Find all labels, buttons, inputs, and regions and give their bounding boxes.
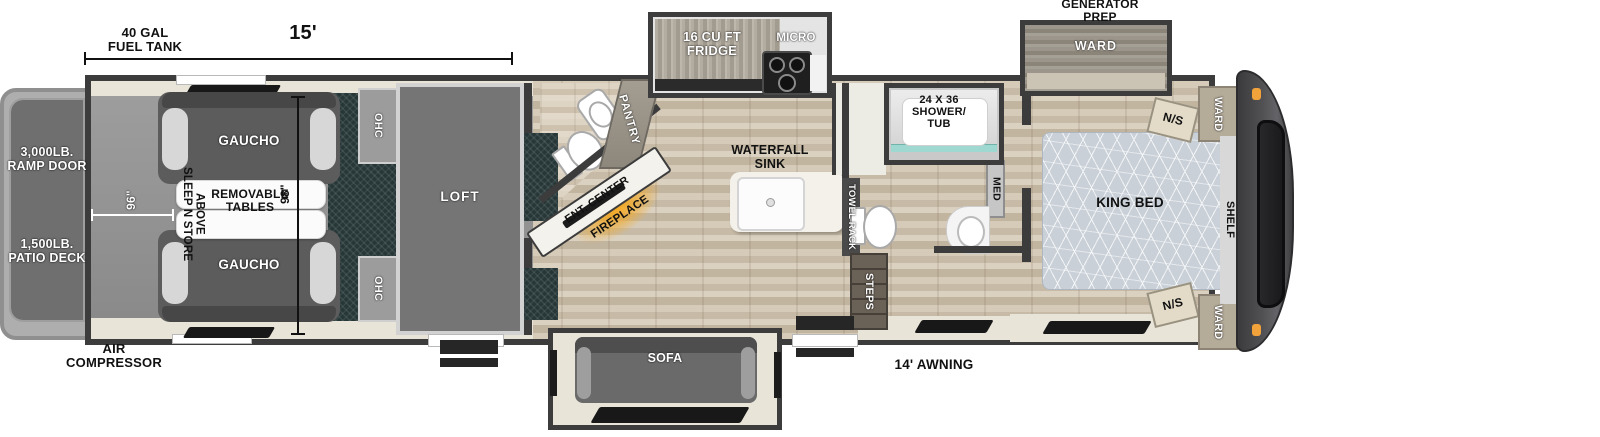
- ward-front-label: WARD: [1198, 86, 1238, 142]
- ward-shelf-front: [1027, 73, 1165, 89]
- steps-label: STEPS: [850, 253, 888, 330]
- front-cap: [1236, 70, 1294, 352]
- dim-tick: [511, 52, 513, 65]
- sofa-arm: [741, 347, 755, 399]
- sleep-n-store-label: SLEEP N STORE ABOVE: [178, 146, 208, 282]
- shower-label: 24 X 36 SHOWER/ TUB: [897, 94, 981, 130]
- bath-counter: [832, 83, 886, 175]
- ramp-door-label: 3,000LB. RAMP DOOR: [4, 146, 90, 174]
- ohc-top-label: OHC: [358, 88, 398, 164]
- main-entry-steps: [796, 316, 854, 330]
- toilet-bowl: [863, 205, 897, 249]
- air-compressor-label: AIR COMPRESSOR: [58, 342, 170, 371]
- sofa-slide-window: [550, 350, 557, 396]
- patio-deck-label: 1,500LB. PATIO DECK: [4, 238, 90, 266]
- fridge-label: 16 CU FT FRIDGE: [652, 30, 772, 59]
- waterfall-sink-label: WATERFALL SINK: [700, 144, 840, 172]
- garage-window-top: [176, 75, 266, 85]
- bath-bottom-wall: [934, 246, 1030, 253]
- garage-entry-steps: [440, 340, 498, 354]
- burner: [769, 57, 785, 73]
- loft-label: LOFT: [396, 190, 524, 205]
- garage-entry-steps: [440, 358, 498, 367]
- entry-mat: [914, 320, 994, 333]
- length-15-dimline: [85, 58, 513, 60]
- marker-light: [1252, 88, 1261, 100]
- bedroom-mat: [1042, 321, 1152, 334]
- sofa-arm: [577, 347, 591, 399]
- ward-slideout: [1020, 20, 1172, 96]
- awning-label: 14' AWNING: [872, 358, 996, 373]
- gaucho-back: [162, 92, 336, 108]
- king-bed-label: KING BED: [1060, 196, 1200, 211]
- king-bed: [1042, 132, 1226, 290]
- ramp-door-panel: [11, 100, 83, 320]
- length-15-label: 15': [268, 22, 338, 44]
- generator-prep-label: GENERATOR PREP: [1040, 0, 1160, 24]
- ohc-bottom-label: OHC: [358, 256, 398, 322]
- gaucho-back: [162, 306, 336, 322]
- rv-floorplan: 40 GAL FUEL TANK 15' 3,000LB. RAMP DOOR …: [0, 0, 1600, 437]
- marker-light: [1252, 324, 1261, 336]
- micro-label: MICRO: [766, 32, 826, 45]
- front-window: [1257, 120, 1285, 308]
- towel-rack-label: TOWEL RACK: [842, 178, 860, 256]
- sofa: [575, 337, 757, 403]
- burner: [789, 57, 805, 73]
- bedroom-wall: [1022, 188, 1031, 262]
- dim-tick: [84, 52, 86, 65]
- sofa-slideout: [548, 328, 782, 430]
- sofa-rug: [590, 407, 749, 423]
- main-entry-door: [792, 334, 858, 347]
- med-label: MED: [986, 160, 1005, 218]
- roof-vent-bottom: [183, 327, 275, 338]
- vanity-basin: [957, 216, 985, 248]
- burner: [778, 74, 796, 92]
- dim-tick: [291, 333, 305, 335]
- loft: [396, 83, 524, 335]
- counter-white: [810, 55, 826, 91]
- dim-tick: [91, 209, 93, 221]
- width-96-label: 96": [120, 180, 144, 220]
- sofa-slide-window: [774, 352, 781, 398]
- dim-tick: [291, 96, 305, 98]
- main-entry-steps: [796, 348, 854, 357]
- fuel-tank-label: 40 GAL FUEL TANK: [80, 26, 210, 55]
- gaucho-cushion: [310, 242, 336, 304]
- accent-panel: [524, 268, 558, 320]
- gaucho-cushion: [310, 108, 336, 170]
- sink-drain: [766, 198, 775, 207]
- sofa-label: SOFA: [600, 352, 730, 366]
- dim-tick: [172, 209, 174, 221]
- length-98-dimline: [297, 97, 299, 335]
- ward-slide-label: WARD: [1036, 40, 1156, 54]
- shelf-label: SHELF: [1220, 136, 1240, 304]
- bath-wall: [842, 83, 849, 181]
- length-98-label: 98": [274, 174, 298, 214]
